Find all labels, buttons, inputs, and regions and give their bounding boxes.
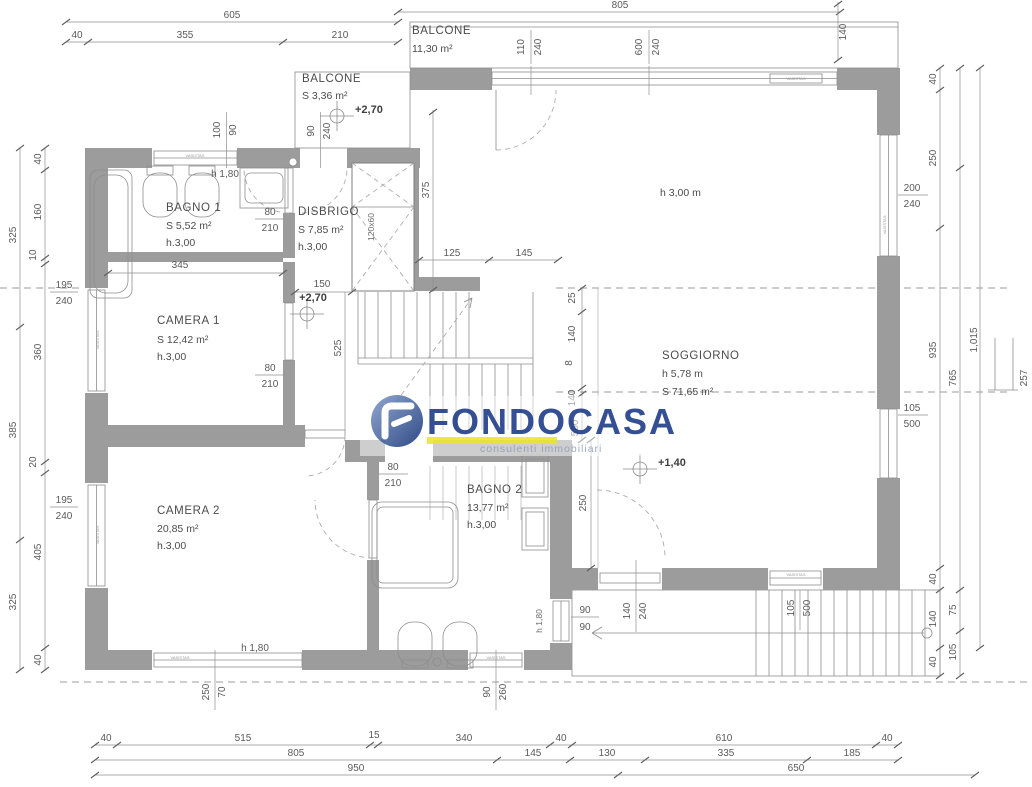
dim-label: 15 bbox=[368, 730, 380, 741]
dim-label: 40 bbox=[71, 30, 83, 41]
windows: VASISTAS VASISTAS VASISTAS VASISTAS VASI… bbox=[88, 72, 897, 667]
dim-label: 765 bbox=[948, 369, 959, 386]
dim-label: 405 bbox=[33, 543, 44, 560]
dim-label: 805 bbox=[288, 748, 305, 759]
dim-label: 90 bbox=[482, 686, 493, 698]
room-name-balcone-small: BALCONE bbox=[302, 73, 361, 85]
floor-plan-page: VASISTAS VASISTAS VASISTAS VASISTAS VASI… bbox=[0, 0, 1032, 787]
room-height-disbrigo: h.3,00 bbox=[298, 241, 327, 253]
dim-label: 140 bbox=[928, 610, 939, 627]
dim-label: 525 bbox=[333, 339, 344, 356]
agency-logo: FONDOCASA consulenti immobiliari bbox=[360, 395, 677, 456]
lift: 120x60 bbox=[352, 163, 414, 291]
dim-label: 210 bbox=[262, 223, 279, 234]
dim-label: 240 bbox=[56, 511, 73, 522]
dim-label: 250 bbox=[201, 683, 212, 700]
dim-label: 355 bbox=[177, 30, 194, 41]
room-area-bagno2: 13,77 m² bbox=[467, 502, 509, 514]
dim-label: 140 bbox=[567, 325, 578, 342]
dim-label: 125 bbox=[444, 248, 461, 259]
dim-label: 185 bbox=[844, 748, 861, 759]
dim-label: 605 bbox=[224, 10, 241, 21]
dim-label: 40 bbox=[33, 153, 44, 165]
room-name-bagno1: BAGNO 1 bbox=[166, 202, 221, 214]
dim-label: 260 bbox=[498, 683, 509, 700]
door-arc-entrance bbox=[496, 90, 556, 150]
dim-label: 240 bbox=[651, 38, 662, 55]
door-leaf-camera1 bbox=[285, 303, 293, 360]
lift-size-label: 120x60 bbox=[366, 213, 376, 241]
room-name-soggiorno: SOGGIORNO bbox=[662, 350, 740, 362]
dim-label: 75 bbox=[948, 604, 959, 616]
dim-label: 240 bbox=[56, 296, 73, 307]
dim-label: 40 bbox=[100, 733, 112, 744]
dim-label: 610 bbox=[716, 733, 733, 744]
dim-label: 200 bbox=[904, 183, 921, 194]
dim-label: 25 bbox=[567, 292, 578, 304]
dim-label: 240 bbox=[533, 38, 544, 55]
window-tag: VASISTAS bbox=[882, 215, 887, 234]
dim-label: 195 bbox=[56, 495, 73, 506]
room-height-bagno1: h.3,00 bbox=[166, 237, 195, 249]
room-name-camera1: CAMERA 1 bbox=[157, 315, 220, 327]
shower bbox=[372, 502, 458, 588]
dim-label: 240 bbox=[322, 122, 333, 139]
door-arc-camera2 bbox=[305, 436, 345, 476]
door-arc-bagno2 bbox=[315, 500, 373, 558]
dim-label: 500 bbox=[802, 599, 813, 616]
dim-label: 600 bbox=[634, 38, 645, 55]
dim-label: 335 bbox=[718, 748, 735, 759]
room-name-disbrigo: DISBRIGO bbox=[298, 206, 359, 218]
dim-label: 1,015 bbox=[969, 327, 980, 352]
room-name-bagno2: BAGNO 2 bbox=[467, 484, 522, 496]
dim-label: 105 bbox=[904, 403, 921, 414]
dim-label: 360 bbox=[33, 343, 44, 360]
dim-label: h 1,80 bbox=[211, 169, 239, 180]
dim-label: 145 bbox=[516, 248, 533, 259]
dim-label: 325 bbox=[8, 593, 19, 610]
dim-label: h 1,80 bbox=[241, 643, 269, 654]
dim-label: 8 bbox=[564, 360, 575, 366]
dim-label: 40 bbox=[33, 654, 44, 666]
logo-name: FONDOCASA bbox=[427, 401, 677, 442]
dim-label: 40 bbox=[881, 733, 893, 744]
room-name-camera2: CAMERA 2 bbox=[157, 505, 220, 517]
dim-label: 240 bbox=[638, 602, 649, 619]
dim-label: 140 bbox=[622, 602, 633, 619]
dim-label: 80 bbox=[264, 363, 276, 374]
dim-label: 935 bbox=[928, 341, 939, 358]
dim-label: 500 bbox=[904, 419, 921, 430]
dim-label: 90 bbox=[579, 622, 591, 633]
dim-label: 40 bbox=[928, 73, 939, 85]
level-marker-hall: +1,40 bbox=[623, 454, 686, 484]
dim-label: 130 bbox=[599, 748, 616, 759]
dim-label: 40 bbox=[928, 656, 939, 668]
dim-label: 100 bbox=[212, 121, 223, 138]
dim-label: 90 bbox=[579, 605, 591, 616]
dim-label: 515 bbox=[235, 733, 252, 744]
dim-label: 20 bbox=[28, 456, 39, 468]
dim-label: 325 bbox=[8, 226, 19, 243]
dim-label: 250 bbox=[928, 149, 939, 166]
dim-label: 650 bbox=[788, 763, 805, 774]
room-height-camera1: h.3,00 bbox=[157, 351, 186, 363]
door-leaf-camera2-bagno2 bbox=[369, 500, 377, 558]
dim-label: 210 bbox=[262, 379, 279, 390]
window-tag: VASISTAS bbox=[171, 655, 190, 660]
door-leaf-hall bbox=[600, 573, 660, 583]
dim-label: 195 bbox=[56, 280, 73, 291]
dim-label: 210 bbox=[332, 30, 349, 41]
dim-label: 105 bbox=[948, 643, 959, 660]
dim-label: h 1,80 bbox=[534, 609, 544, 633]
dim-label: 110 bbox=[516, 39, 527, 55]
dim-label: 210 bbox=[385, 478, 402, 489]
edge-mark-label: 257 bbox=[1019, 369, 1030, 386]
dim-label: 805 bbox=[612, 0, 629, 11]
dim-label: 40 bbox=[555, 733, 567, 744]
dim-label: 240 bbox=[904, 199, 921, 210]
window-tag: VASISTAS bbox=[95, 330, 100, 349]
dim-label: 80 bbox=[387, 462, 399, 473]
dim-label: 375 bbox=[421, 181, 432, 198]
dim-label: 80 bbox=[264, 207, 276, 218]
dim-label: 340 bbox=[456, 733, 473, 744]
logo-tagline: consulenti immobiliari bbox=[480, 443, 602, 455]
dim-label: 10 bbox=[28, 249, 39, 261]
dim-label: 90 bbox=[306, 125, 317, 137]
ceiling-note-soggiorno: h 3,00 m bbox=[660, 187, 701, 199]
room-area-balcone-top: 11,30 m² bbox=[412, 43, 453, 55]
dim-label: 140 bbox=[838, 23, 849, 40]
floor-plan-drawing: VASISTAS VASISTAS VASISTAS VASISTAS VASI… bbox=[0, 0, 1032, 787]
door-arc-hall bbox=[597, 490, 665, 558]
dim-label: 250 bbox=[578, 494, 589, 511]
window-tag: VASISTAS bbox=[186, 153, 205, 158]
room-height-soggiorno: h 5,78 m bbox=[662, 368, 703, 380]
room-area-camera2: 20,85 m² bbox=[157, 523, 199, 535]
dim-label: 160 bbox=[33, 203, 44, 220]
window-tag: VASISTAS bbox=[787, 572, 806, 577]
door-hinge-dot bbox=[289, 158, 297, 166]
dim-label: 90 bbox=[228, 124, 239, 136]
dim-label: 70 bbox=[217, 686, 228, 698]
dim-label: 145 bbox=[525, 748, 542, 759]
dim-label: 150 bbox=[314, 279, 331, 290]
level-marker-disbrigo: +2,70 bbox=[290, 292, 327, 329]
door-leaf-bagno1 bbox=[285, 168, 293, 213]
dim-label: 345 bbox=[172, 260, 189, 271]
room-area-disbrigo: S 7,85 m² bbox=[298, 224, 344, 236]
room-height-camera2: h.3,00 bbox=[157, 540, 186, 552]
room-name-balcone-top: BALCONE bbox=[412, 25, 471, 37]
level-value: +2,70 bbox=[355, 104, 383, 116]
door-leaf-camera2 bbox=[305, 430, 345, 438]
level-value: +1,40 bbox=[658, 457, 686, 469]
room-area-bagno1: S 5,52 m² bbox=[166, 220, 212, 232]
dim-label: 950 bbox=[348, 763, 365, 774]
room-area-balcone-small: S 3,36 m² bbox=[302, 90, 348, 102]
room-area-camera1: S 12,42 m² bbox=[157, 334, 209, 346]
window-tag: VASISTAS bbox=[95, 525, 100, 544]
dim-label: 105 bbox=[786, 599, 797, 616]
window-tag: VASISTAS bbox=[787, 76, 806, 81]
dim-label: 385 bbox=[8, 421, 19, 438]
level-value: +2,70 bbox=[299, 292, 327, 304]
room-height-bagno2: h.3,00 bbox=[467, 519, 496, 531]
dim-label: 40 bbox=[928, 573, 939, 585]
